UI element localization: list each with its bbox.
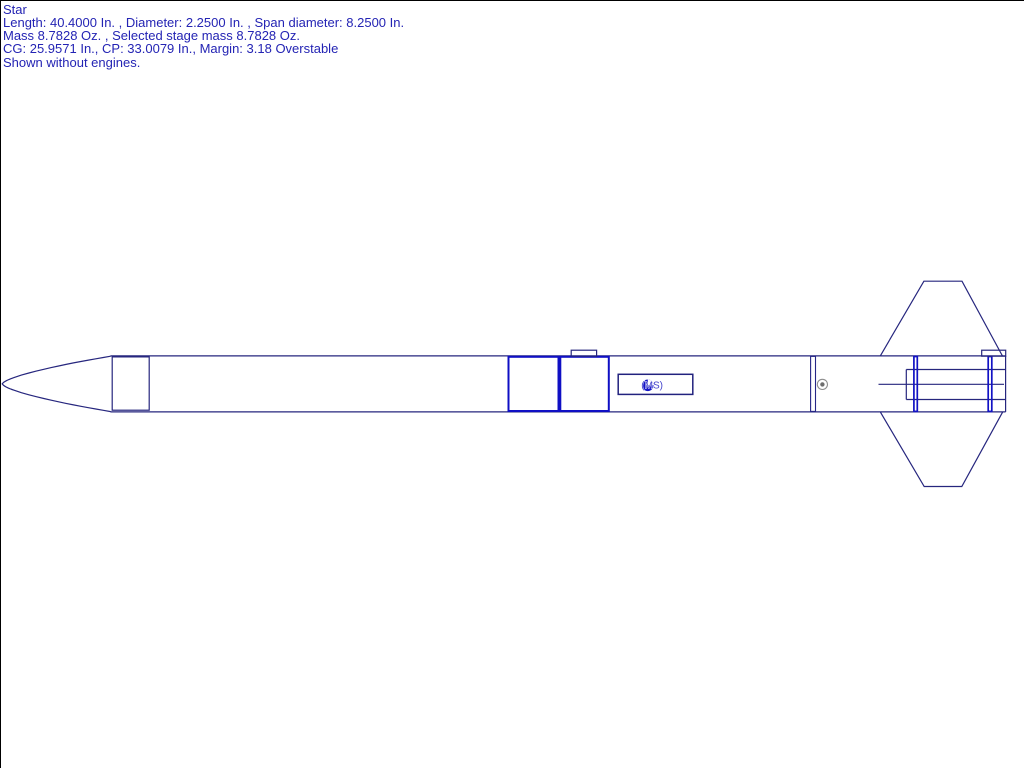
svg-text:(MS): (MS) <box>641 381 663 392</box>
